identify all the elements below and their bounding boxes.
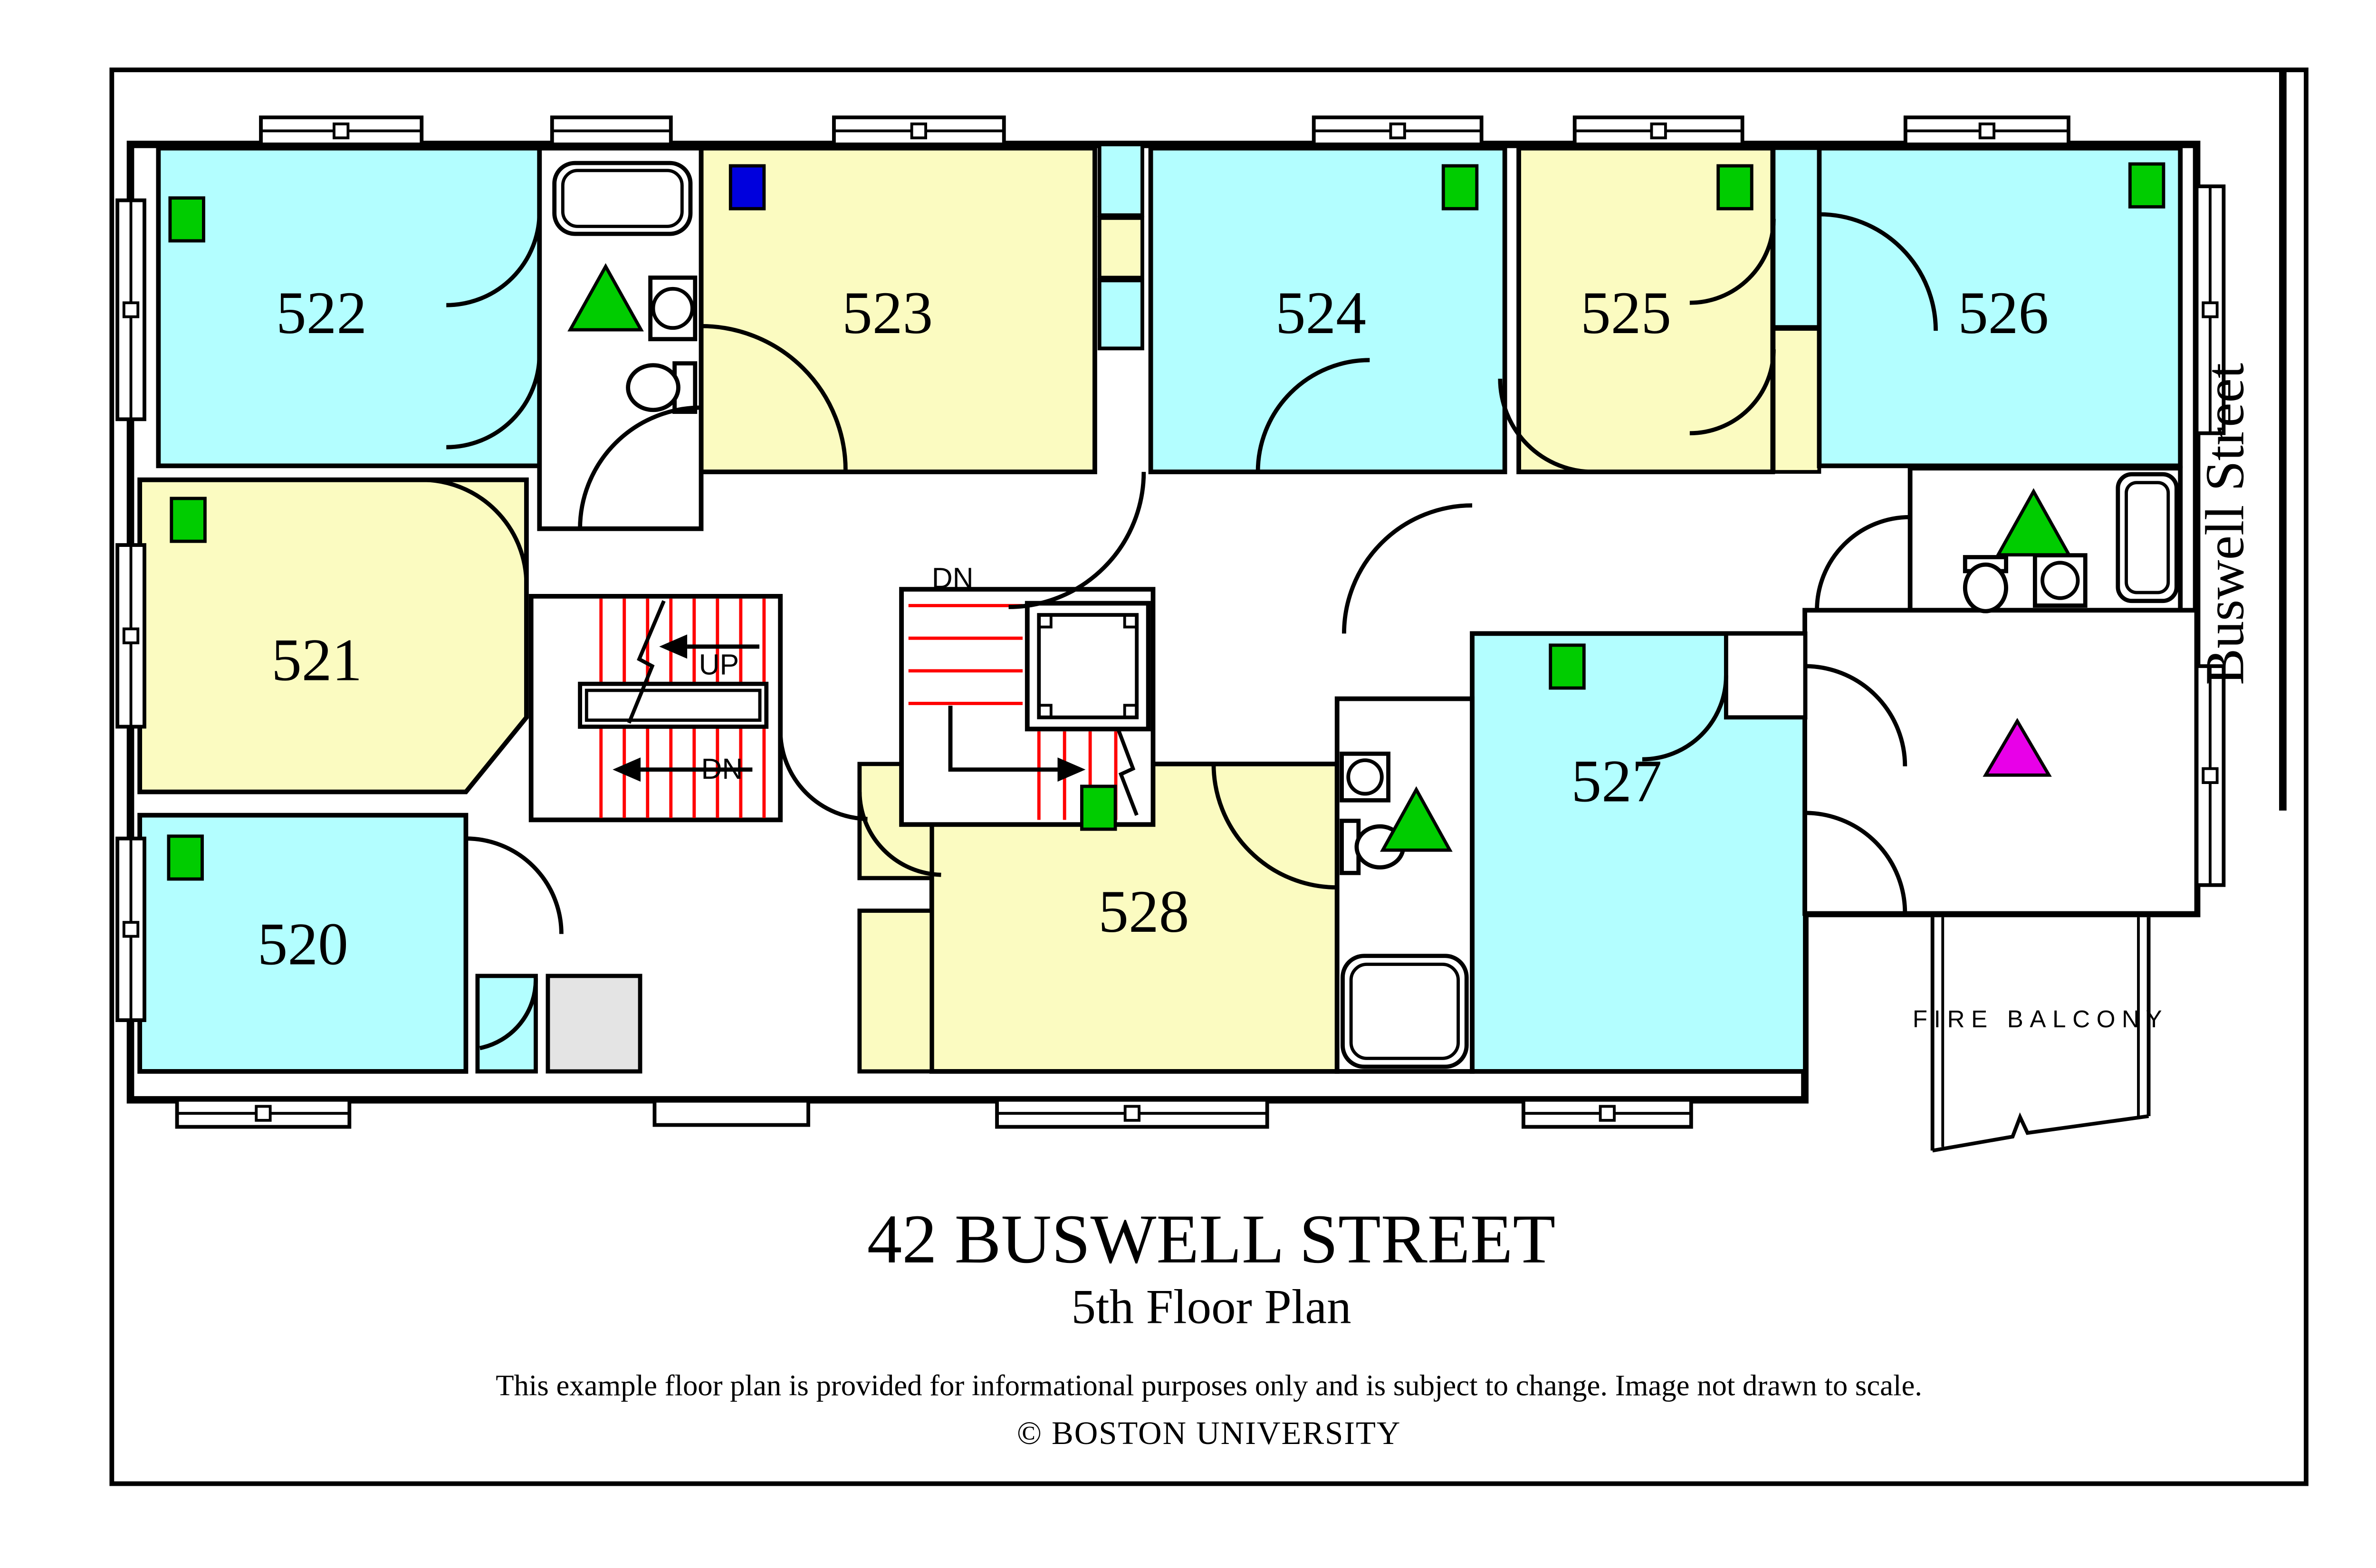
- center-dn-label: DN: [932, 562, 974, 594]
- green-square-icon-520: [169, 836, 202, 879]
- closet-523-524-a: [1100, 144, 1142, 215]
- room-520-closet: [478, 976, 536, 1071]
- room-label-526: 526: [1958, 279, 2049, 346]
- room-label-525: 525: [1581, 279, 1671, 346]
- window-left-520: [117, 839, 144, 1020]
- bathtub: [1342, 956, 1466, 1067]
- blue-square-icon-523: [730, 166, 764, 209]
- window-top-bath: [552, 117, 671, 144]
- window-top-525: [1575, 117, 1743, 144]
- window-left-522: [117, 201, 144, 420]
- room-label-524: 524: [1275, 279, 1366, 346]
- toilet: [1965, 564, 2006, 611]
- window-left-521: [117, 545, 144, 727]
- room-528-closet-b: [860, 911, 932, 1071]
- window-top-526: [1906, 117, 2069, 144]
- window-top-524: [1314, 117, 1482, 144]
- closet-523-524-c: [1100, 280, 1142, 348]
- green-square-icon-525: [1718, 166, 1752, 209]
- room-label-520: 520: [258, 910, 348, 977]
- closets-525: [1773, 329, 1819, 472]
- plan-copyright: © BOSTON UNIVERSITY: [1017, 1415, 1401, 1451]
- room-label-523: 523: [842, 279, 933, 346]
- plan-title: 42 BUSWELL STREET: [867, 1200, 1556, 1278]
- window-bottom-527: [1523, 1100, 1691, 1127]
- toilet: [628, 365, 679, 410]
- room-label-521: 521: [271, 626, 362, 693]
- elevator-shaft: [1027, 603, 1149, 729]
- exterior-bump: [654, 1101, 808, 1125]
- closet-523-524-b: [1100, 218, 1142, 277]
- green-square-icon-522: [170, 198, 204, 241]
- room-label-522: 522: [276, 279, 367, 346]
- vestibule-527: [1726, 633, 1805, 717]
- window-right-common: [2197, 666, 2224, 885]
- plan-subtitle: 5th Floor Plan: [1071, 1280, 1351, 1334]
- window-top-523: [834, 117, 1004, 144]
- fire-balcony-label: FIRE BALCONY: [1913, 1005, 2169, 1033]
- window-top-522: [261, 117, 422, 144]
- stair-dn-label: DN: [701, 753, 743, 785]
- green-square-icon-524: [1443, 166, 1477, 209]
- bathtub: [555, 163, 690, 234]
- street-label: Buswell Street: [2195, 363, 2256, 685]
- green-square-icon-526: [2130, 164, 2164, 207]
- window-bottom-528: [997, 1100, 1267, 1127]
- shaft-gray: [548, 976, 640, 1071]
- plan-disclaimer: This example floor plan is provided for …: [496, 1368, 1922, 1402]
- room-label-527: 527: [1571, 747, 1662, 814]
- green-square-icon-521: [172, 498, 205, 541]
- green-square-icon-527: [1551, 645, 1584, 688]
- floor-plan-drawing: FIRE BALCONY UP DN DN: [0, 0, 2376, 1537]
- green-square-icon-528: [1082, 786, 1115, 829]
- sink: [651, 277, 695, 339]
- floor-plan-page: FIRE BALCONY UP DN DN: [0, 0, 2376, 1537]
- room-label-528: 528: [1098, 878, 1189, 945]
- window-bottom-520: [177, 1100, 350, 1127]
- entry-525-526: [1773, 148, 1819, 327]
- stair-up-label: UP: [699, 649, 739, 681]
